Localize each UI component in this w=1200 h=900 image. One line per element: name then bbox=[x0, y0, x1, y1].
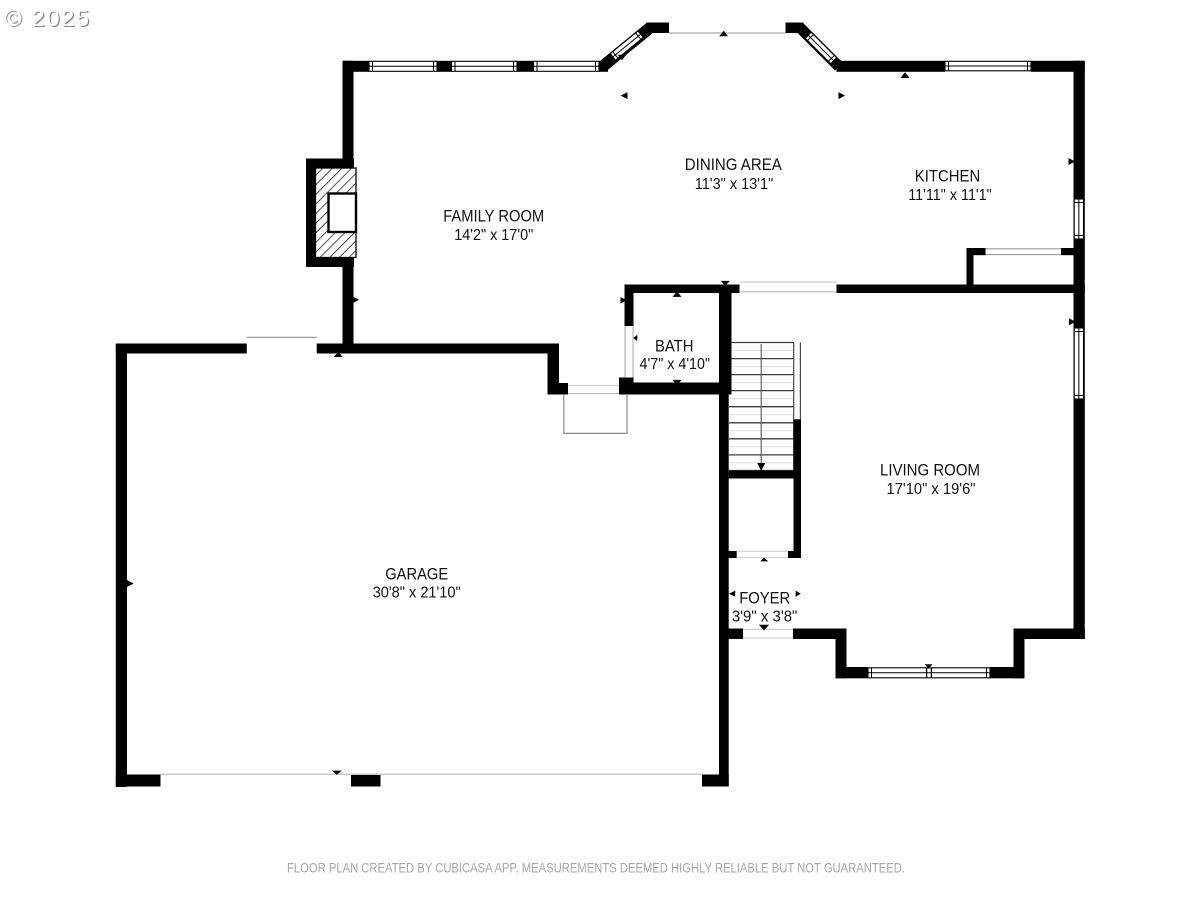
svg-text:FAMILY ROOM: FAMILY ROOM bbox=[443, 207, 544, 226]
svg-text:FOYER: FOYER bbox=[739, 589, 790, 608]
svg-text:DINING AREA: DINING AREA bbox=[685, 155, 783, 174]
svg-text:BATH: BATH bbox=[655, 337, 694, 356]
svg-text:14'2" x 17'0": 14'2" x 17'0" bbox=[454, 227, 533, 244]
svg-text:LIVING ROOM: LIVING ROOM bbox=[880, 461, 980, 480]
svg-text:11'11" x 11'1": 11'11" x 11'1" bbox=[908, 187, 992, 204]
svg-text:FLOOR PLAN CREATED BY CUBICASA: FLOOR PLAN CREATED BY CUBICASA APP. MEAS… bbox=[287, 861, 905, 876]
svg-text:3'9" x 3'8": 3'9" x 3'8" bbox=[732, 608, 798, 625]
svg-text:GARAGE: GARAGE bbox=[385, 565, 448, 584]
svg-text:30'8" x 21'10": 30'8" x 21'10" bbox=[373, 584, 461, 601]
svg-text:11'3" x 13'1": 11'3" x 13'1" bbox=[695, 176, 774, 193]
svg-text:17'10" x 19'6": 17'10" x 19'6" bbox=[887, 481, 976, 498]
svg-text:KITCHEN: KITCHEN bbox=[915, 167, 981, 186]
svg-text:4'7" x 4'10": 4'7" x 4'10" bbox=[640, 356, 711, 373]
svg-text:© 2025: © 2025 bbox=[5, 5, 92, 31]
